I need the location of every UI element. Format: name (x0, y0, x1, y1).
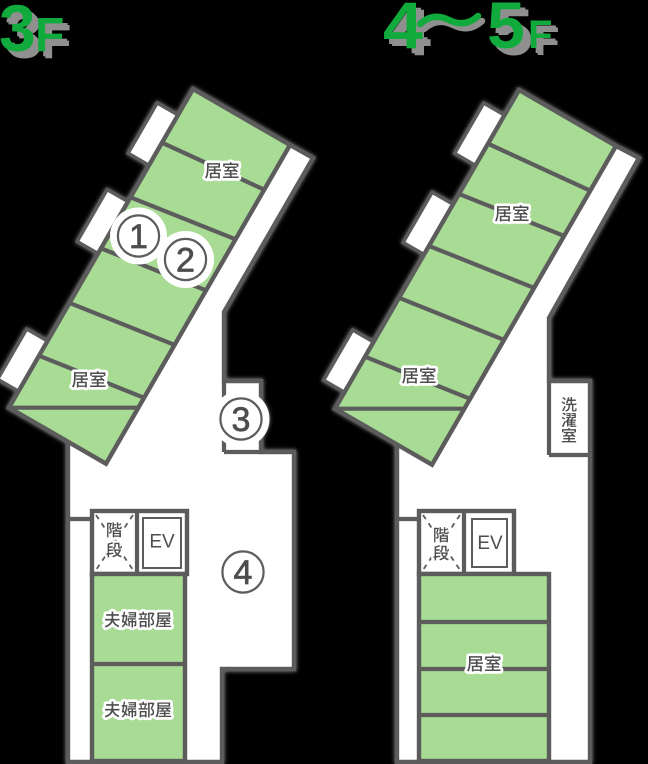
svg-text:EV: EV (149, 532, 175, 553)
svg-text:EV: EV (477, 533, 503, 554)
svg-text:F: F (528, 13, 552, 57)
svg-text:3: 3 (0, 0, 36, 65)
svg-text:3: 3 (232, 401, 251, 439)
svg-text:4: 4 (234, 554, 253, 592)
svg-text:4: 4 (383, 0, 423, 62)
svg-text:5: 5 (487, 0, 525, 62)
svg-text:2: 2 (176, 242, 195, 280)
svg-text:F: F (35, 9, 64, 62)
svg-text:1: 1 (129, 218, 148, 256)
